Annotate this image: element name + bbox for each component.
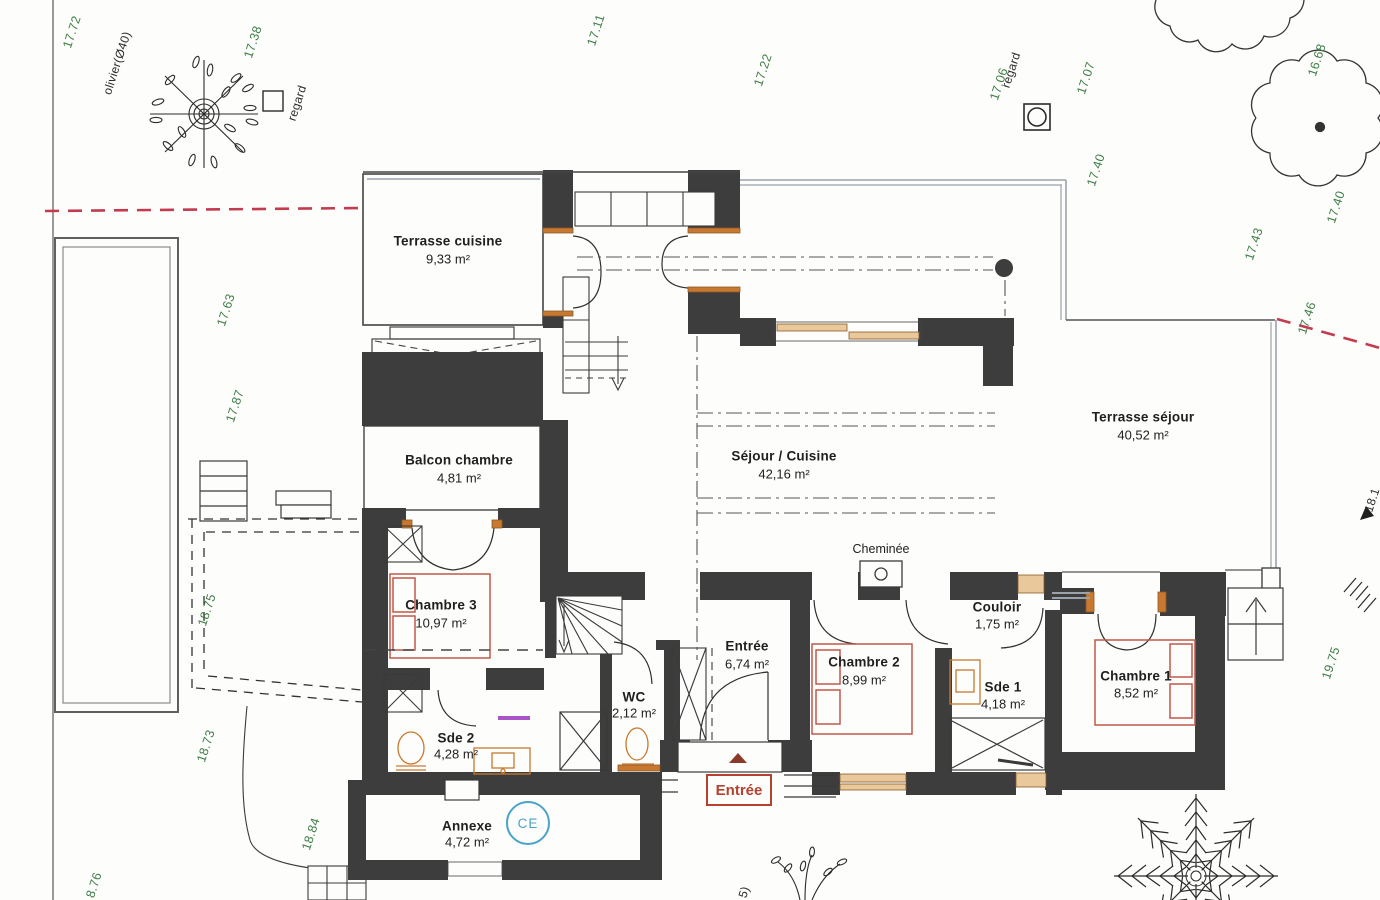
room-area-sde1: 4,18 m² <box>981 697 1025 712</box>
plan-drawing <box>0 0 1380 900</box>
cheminee-label: Cheminée <box>853 542 910 556</box>
stairs-main <box>556 596 622 654</box>
entrance-label-box: Entrée <box>706 774 772 806</box>
room-label-annexe: Annexe <box>442 819 492 834</box>
entrance-label: Entrée <box>716 782 763 799</box>
column-dot <box>995 259 1013 277</box>
pine-tree-icon <box>1114 794 1278 900</box>
ce-badge-label: CE <box>518 816 539 831</box>
room-area-terrasse-cuisine: 9,33 m² <box>426 252 470 267</box>
room-area-chambre2: 8,99 m² <box>842 673 886 688</box>
room-label-chambre2: Chambre 2 <box>828 655 900 670</box>
balcon-chambre-outline <box>364 426 540 510</box>
stairs-exterior-east <box>1228 588 1283 660</box>
floor-plan: Terrasse cuisine 9,33 m² Balcon chambre … <box>0 0 1380 900</box>
room-area-couloir: 1,75 m² <box>975 617 1019 632</box>
terrasse-sejour-outline <box>740 180 1280 600</box>
doors <box>412 236 1156 740</box>
room-label-sde2: Sde 2 <box>437 731 474 746</box>
plant-icon <box>770 847 847 900</box>
room-label-balcon-chambre: Balcon chambre <box>405 453 513 468</box>
room-area-chambre3: 10,97 m² <box>415 616 466 631</box>
hatch-marks <box>1344 578 1376 612</box>
room-area-wc: 2,12 m² <box>612 706 656 721</box>
room-label-sde1: Sde 1 <box>984 680 1021 695</box>
olive-tree-icon <box>150 55 258 168</box>
room-label-wc: WC <box>623 690 646 705</box>
room-area-annexe: 4,72 m² <box>445 835 489 850</box>
room-label-terrasse-sejour: Terrasse séjour <box>1092 410 1195 425</box>
boiler-box <box>445 780 479 800</box>
room-label-couloir: Couloir <box>973 600 1022 615</box>
garden-path <box>243 706 366 900</box>
ce-badge: CE <box>506 801 550 845</box>
room-area-sde2: 4,28 m² <box>434 747 478 762</box>
room-label-chambre3: Chambre 3 <box>405 598 477 613</box>
room-area-chambre1: 8,52 m² <box>1114 686 1158 701</box>
regard-icon-left <box>263 91 283 111</box>
canopy-tree-partial-icon <box>1155 0 1304 52</box>
cheminee-icon <box>860 561 902 587</box>
garden-steps-left <box>200 461 331 521</box>
room-area-sejour-cuisine: 42,16 m² <box>758 467 809 482</box>
room-area-balcon-chambre: 4,81 m² <box>437 471 481 486</box>
pool <box>55 238 178 712</box>
room-area-terrasse-sejour: 40,52 m² <box>1117 428 1168 443</box>
room-label-sejour-cuisine: Séjour / Cuisine <box>731 449 836 464</box>
room-label-entree: Entrée <box>725 639 768 654</box>
regard-icon-right <box>1024 104 1050 130</box>
room-label-terrasse-cuisine: Terrasse cuisine <box>394 234 503 249</box>
room-area-entree: 6,74 m² <box>725 657 769 672</box>
room-label-chambre1: Chambre 1 <box>1100 669 1172 684</box>
